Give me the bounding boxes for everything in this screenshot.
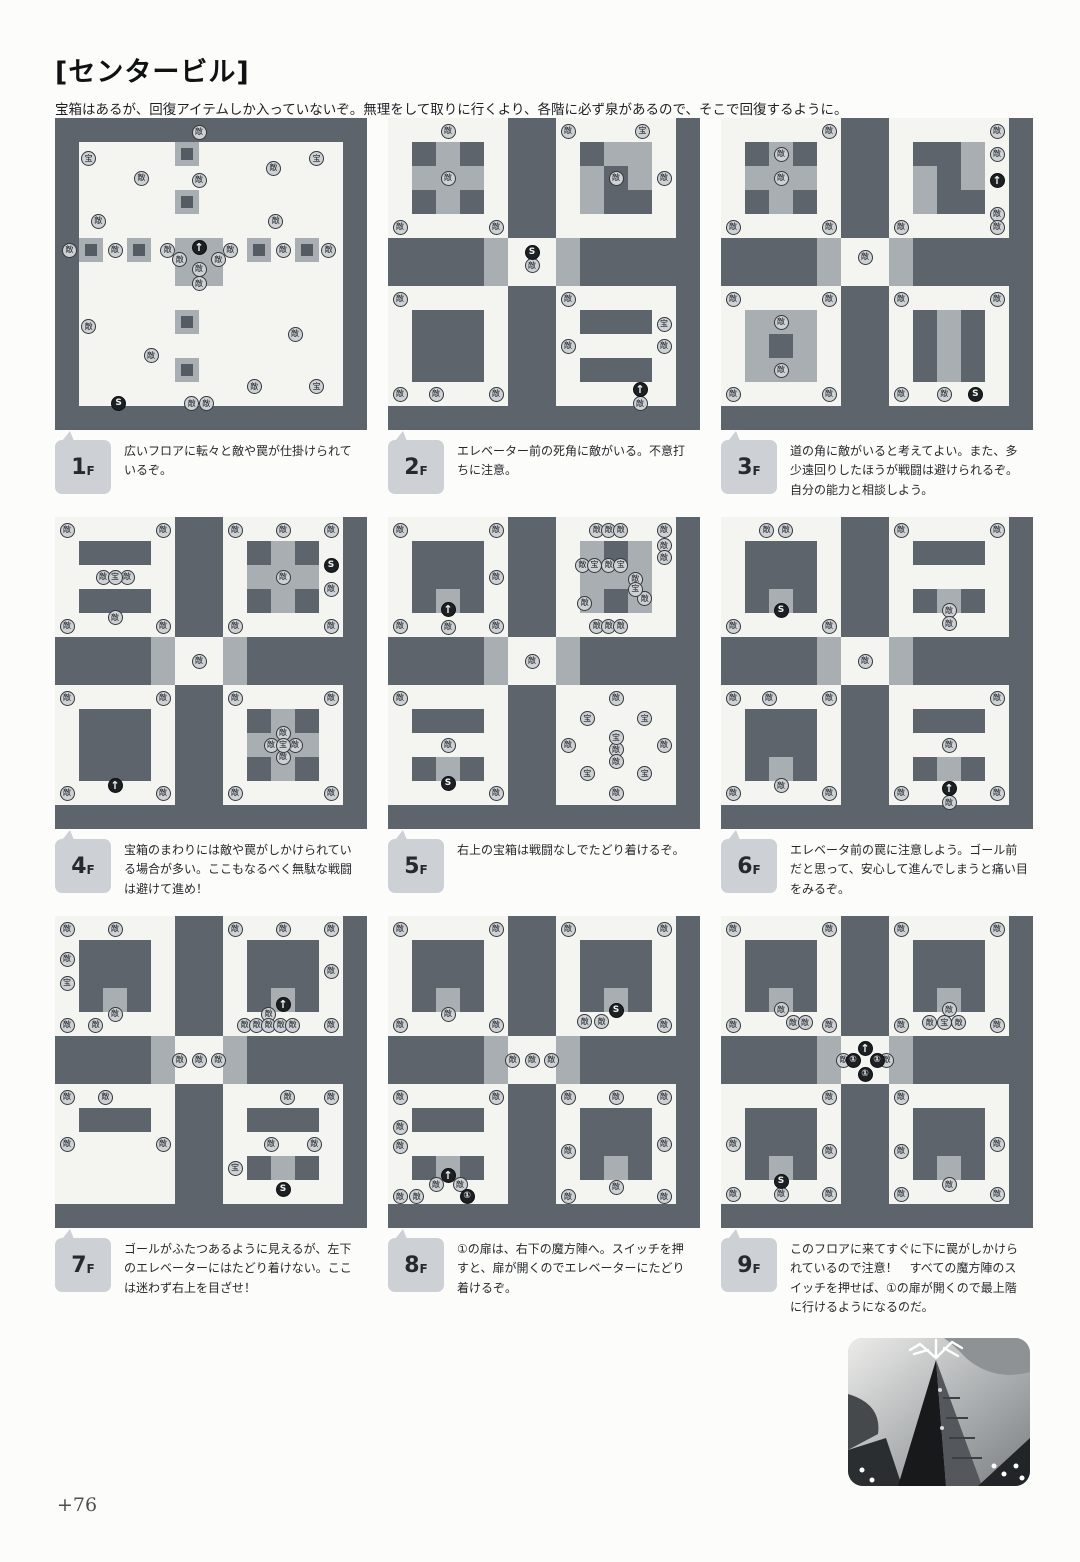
enemy-marker: 敵 [276,570,291,585]
floor-map-2f: 敵敵敵敵敵敵敵敵敵敵敵敵敵敵敵敵宝宝S↑ [388,118,700,430]
floor-suffix: F [420,1262,428,1276]
floor-caption-row: 5F右上の宝箱は戦闘なしでたどり着けるぞ。 [388,839,700,893]
enemy-marker: 敵 [192,1053,207,1068]
enemy-marker: 敵 [489,1090,504,1105]
enemy-marker: 敵 [942,738,957,753]
floor-maps-grid: 宝宝宝敵敵敵敵敵敵敵敵敵敵敵敵敵敵敵敵敵敵敵敵敵敵S↑1F広いフロアに転々と敵や… [55,118,1033,1315]
floor-number: 7 [71,1253,86,1278]
floor-caption-text: 広いフロアに転々と敵や罠が仕掛けられているぞ。 [124,442,362,494]
elevator-up-marker: ↑ [192,240,207,255]
enemy-marker: 敵 [91,214,106,229]
floor-panel-6f: 敵敵敵敵敵敵敵敵敵敵敵敵敵敵敵敵敵敵敵敵S↑6Fエレベータ前の罠に注意しよう。ゴ… [721,517,1033,916]
enemy-marker: 敵 [192,654,207,669]
enemy-marker: 敵 [822,691,837,706]
enemy-marker: 敵 [393,220,408,235]
enemy-marker: 敵 [489,619,504,634]
enemy-marker: 敵 [822,1187,837,1202]
enemy-marker: 敵 [321,243,336,258]
enemy-marker: 敵 [774,1002,789,1017]
enemy-marker: 敵 [228,922,243,937]
enemy-marker: 敵 [726,1137,741,1152]
enemy-marker: 敵 [858,654,873,669]
enemy-marker: 敵 [990,147,1005,162]
enemy-marker: 敵 [211,1053,226,1068]
enemy-marker: 敵 [942,616,957,631]
enemy-marker: 敵 [990,124,1005,139]
floor-number: 1 [71,455,86,480]
enemy-marker: 敵 [429,387,444,402]
enemy-marker: 敵 [774,778,789,793]
floor-panel-5f: 敵敵敵敵敵敵敵敵敵敵敵敵敵敵敵敵敵敵敵敵敵敵敵敵敵敵敵敵敵敵宝宝宝宝宝宝宝宝S↑… [388,517,700,916]
floor-panel-1f: 宝宝宝敵敵敵敵敵敵敵敵敵敵敵敵敵敵敵敵敵敵敵敵敵敵S↑1F広いフロアに転々と敵や… [55,118,367,517]
enemy-marker: 敵 [192,262,207,277]
enemy-marker: 敵 [280,1090,295,1105]
enemy-marker: 敵 [726,786,741,801]
elevator-up-marker: ↑ [858,1041,873,1056]
floor-badge-2f: 2F [388,440,444,494]
enemy-marker: 敵 [324,786,339,801]
enemy-marker: 敵 [393,1090,408,1105]
enemy-marker: 敵 [211,252,226,267]
enemy-marker: 敵 [657,1090,672,1105]
enemy-marker: 敵 [759,523,774,538]
start-marker: S [525,245,540,260]
enemy-marker: 敵 [894,220,909,235]
enemy-marker: 敵 [609,691,624,706]
floor-badge-6f: 6F [721,839,777,893]
enemy-marker: 敵 [156,523,171,538]
enemy-marker: 敵 [393,1120,408,1135]
floor-caption-row: 2Fエレベーター前の死角に敵がいる。不意打ちに注意。 [388,440,700,494]
enemy-marker: 敵 [60,1090,75,1105]
floor-caption-row: 7Fゴールがふたつあるように見えるが、左下のエレベーターにはたどり着けない。ここ… [55,1238,367,1298]
enemy-marker: 敵 [228,691,243,706]
enemy-marker: 敵 [822,387,837,402]
enemy-marker: 敵 [60,922,75,937]
enemy-marker: 敵 [894,1018,909,1033]
treasure-marker: 宝 [937,1015,952,1030]
floor-panel-9f: 敵敵敵敵敵敵敵敵敵敵敵敵敵敵敵敵敵敵敵敵敵敵敵敵敵敵敵敵宝S↑①①①9Fこのフロ… [721,916,1033,1315]
enemy-marker: 敵 [60,1018,75,1033]
enemy-marker: 敵 [441,620,456,635]
elevator-up-marker: ↑ [441,1168,456,1183]
enemy-marker: 敵 [990,220,1005,235]
enemy-marker: 敵 [324,523,339,538]
elevator-up-marker: ↑ [942,781,957,796]
enemy-marker: 敵 [894,523,909,538]
enemy-marker: 敵 [822,220,837,235]
enemy-marker: 敵 [393,292,408,307]
floor-badge-4f: 4F [55,839,111,893]
enemy-marker: 敵 [192,125,207,140]
enemy-marker: 敵 [134,171,149,186]
enemy-marker: 敵 [60,523,75,538]
floor-map-4f: 敵敵敵敵敵敵敵敵敵敵敵敵敵敵敵敵敵敵敵敵敵敵敵敵敵敵敵宝宝S↑ [55,517,367,829]
enemy-marker: 敵 [525,1053,540,1068]
treasure-marker: 宝 [228,1161,243,1176]
enemy-marker: 敵 [108,1007,123,1022]
enemy-marker: 敵 [441,1007,456,1022]
floor-badge-8f: 8F [388,1238,444,1292]
floor-caption-row: 1F広いフロアに転々と敵や罠が仕掛けられているぞ。 [55,440,367,494]
floor-caption-text: このフロアに来てすぐに下に罠がしかけられているので注意！ すべての魔方陣のスイッ… [790,1240,1028,1318]
numbered-door-marker: ① [870,1053,885,1068]
enemy-marker: 敵 [774,171,789,186]
floor-panel-2f: 敵敵敵敵敵敵敵敵敵敵敵敵敵敵敵敵宝宝S↑2Fエレベーター前の死角に敵がいる。不意… [388,118,700,517]
page-number: +76 [57,1494,97,1516]
treasure-marker: 宝 [635,124,650,139]
floor-badge-3f: 3F [721,440,777,494]
floor-panel-4f: 敵敵敵敵敵敵敵敵敵敵敵敵敵敵敵敵敵敵敵敵敵敵敵敵敵敵敵宝宝S↑4F宝箱のまわりに… [55,517,367,916]
enemy-marker: 敵 [199,396,214,411]
start-marker: S [774,1174,789,1189]
floor-caption-row: 9Fこのフロアに来てすぐに下に罠がしかけられているので注意！ すべての魔方陣のス… [721,1238,1033,1318]
enemy-marker: 敵 [268,214,283,229]
enemy-marker: 敵 [726,691,741,706]
enemy-marker: 敵 [285,1018,300,1033]
enemy-marker: 敵 [726,619,741,634]
enemy-marker: 敵 [894,922,909,937]
enemy-marker: 敵 [990,1137,1005,1152]
floor-number: 3 [737,455,752,480]
floor-badge-1f: 1F [55,440,111,494]
enemy-marker: 敵 [858,250,873,265]
enemy-marker: 敵 [561,339,576,354]
enemy-marker: 敵 [822,1018,837,1033]
enemy-marker: 敵 [108,922,123,937]
enemy-marker: 敵 [990,786,1005,801]
enemy-marker: 敵 [228,523,243,538]
floor-number: 4 [71,854,86,879]
enemy-marker: 敵 [726,292,741,307]
enemy-marker: 敵 [108,243,123,258]
enemy-marker: 敵 [393,619,408,634]
enemy-marker: 敵 [798,1015,813,1030]
enemy-marker: 敵 [441,738,456,753]
enemy-marker: 敵 [324,1090,339,1105]
elevator-up-marker: ↑ [990,173,1005,188]
enemy-marker: 敵 [489,570,504,585]
enemy-marker: 敵 [990,523,1005,538]
enemy-marker: 敵 [822,619,837,634]
enemy-marker: 敵 [393,691,408,706]
enemy-marker: 敵 [276,243,291,258]
floor-caption-row: 6Fエレベータ前の罠に注意しよう。ゴール前だと思って、安心して進んでしまうと痛い… [721,839,1033,899]
floor-map-8f: 敵敵敵敵敵敵敵敵敵敵敵敵敵敵敵敵敵敵敵敵敵敵敵敵敵敵敵敵敵S↑① [388,916,700,1228]
enemy-marker: 敵 [88,1018,103,1033]
start-marker: S [276,1182,291,1197]
treasure-marker: 宝 [276,738,291,753]
enemy-marker: 敵 [990,922,1005,937]
enemy-marker: 敵 [726,1018,741,1033]
enemy-marker: 敵 [613,619,628,634]
enemy-marker: 敵 [657,1018,672,1033]
enemy-marker: 敵 [60,619,75,634]
floor-number: 9 [737,1253,752,1278]
treasure-marker: 宝 [580,711,595,726]
enemy-marker: 敵 [774,315,789,330]
enemy-marker: 敵 [156,691,171,706]
floor-suffix: F [87,863,95,877]
floor-caption-text: 右上の宝箱は戦闘なしでたどり着けるぞ。 [457,841,695,893]
enemy-marker: 敵 [393,1139,408,1154]
enemy-marker: 敵 [393,1189,408,1204]
enemy-marker: 敵 [324,922,339,937]
enemy-marker: 敵 [990,1187,1005,1202]
enemy-marker: 敵 [276,922,291,937]
guidebook-page: [センタービル] 宝箱はあるが、回復アイテムしか入っていないぞ。無理をして取りに… [0,0,1080,1562]
enemy-marker: 敵 [324,619,339,634]
elevator-up-marker: ↑ [441,602,456,617]
floor-suffix: F [87,1262,95,1276]
enemy-marker: 敵 [276,523,291,538]
enemy-marker: 敵 [441,171,456,186]
enemy-marker: 敵 [613,523,628,538]
enemy-marker: 敵 [393,922,408,937]
elevator-up-marker: ↑ [633,382,648,397]
enemy-marker: 敵 [894,1144,909,1159]
enemy-marker: 敵 [489,523,504,538]
enemy-marker: 敵 [393,1018,408,1033]
enemy-marker: 敵 [990,1018,1005,1033]
enemy-marker: 敵 [98,1090,113,1105]
treasure-marker: 宝 [609,730,624,745]
enemy-marker: 敵 [726,922,741,937]
enemy-marker: 敵 [657,738,672,753]
enemy-marker: 敵 [657,550,672,565]
floor-map-9f: 敵敵敵敵敵敵敵敵敵敵敵敵敵敵敵敵敵敵敵敵敵敵敵敵敵敵敵敵宝S↑①①① [721,916,1033,1228]
page-header: [センタービル] 宝箱はあるが、回復アイテムしか入っていないぞ。無理をして取りに… [55,50,1035,118]
start-marker: S [609,1003,624,1018]
floor-number: 2 [404,455,419,480]
floor-caption-row: 3F道の角に敵がいると考えてよい。また、多少遠回りしたほうが戦闘は避けられるぞ。… [721,440,1033,500]
enemy-marker: 敵 [561,1090,576,1105]
enemy-marker: 敵 [762,691,777,706]
enemy-marker: 敵 [657,1189,672,1204]
enemy-marker: 敵 [489,786,504,801]
enemy-marker: 敵 [561,1144,576,1159]
enemy-marker: 敵 [778,523,793,538]
floor-badge-7f: 7F [55,1238,111,1292]
enemy-marker: 敵 [60,1137,75,1152]
enemy-marker: 敵 [324,582,339,597]
treasure-marker: 宝 [587,558,602,573]
floor-caption-row: 8F①の扉は、右下の魔方陣へ。スイッチを押すと、扉が開くのでエレベーターにたどり… [388,1238,700,1298]
elevator-up-marker: ↑ [108,778,123,793]
enemy-marker: 敵 [894,1187,909,1202]
floor-number: 8 [404,1253,419,1278]
enemy-marker: 敵 [156,786,171,801]
enemy-marker: 敵 [288,327,303,342]
treasure-marker: 宝 [657,317,672,332]
enemy-marker: 敵 [62,243,77,258]
enemy-marker: 敵 [324,691,339,706]
enemy-marker: 敵 [822,1144,837,1159]
floor-badge-5f: 5F [388,839,444,893]
floor-map-6f: 敵敵敵敵敵敵敵敵敵敵敵敵敵敵敵敵敵敵敵敵S↑ [721,517,1033,829]
treasure-marker: 宝 [613,558,628,573]
floor-suffix: F [753,1262,761,1276]
floor-suffix: F [87,464,95,478]
numbered-door-marker: ① [846,1053,861,1068]
enemy-marker: 敵 [525,258,540,273]
page-title: [センタービル] [55,50,1035,89]
floor-suffix: F [753,464,761,478]
enemy-marker: 敵 [942,1177,957,1192]
floor-map-1f: 宝宝宝敵敵敵敵敵敵敵敵敵敵敵敵敵敵敵敵敵敵敵敵敵敵S↑ [55,118,367,430]
floor-caption-text: 宝箱のまわりには敵や罠がしかけられている場合が多い。ここもなるべく無駄な戦闘は避… [124,841,362,899]
enemy-marker: 敵 [324,964,339,979]
enemy-marker: 敵 [247,379,262,394]
floor-number: 5 [404,854,419,879]
enemy-marker: 敵 [726,387,741,402]
enemy-marker: 敵 [561,1189,576,1204]
enemy-marker: 敵 [774,363,789,378]
floor-panel-7f: 敵敵敵敵敵敵敵敵敵敵敵敵敵敵敵敵敵敵敵敵敵敵敵敵敵敵敵敵宝宝S↑7Fゴールがふた… [55,916,367,1315]
enemy-marker: 敵 [561,124,576,139]
treasure-marker: 宝 [628,582,643,597]
tower-screenshot-photo [848,1338,1030,1486]
floor-map-3f: 敵敵敵敵敵敵敵敵敵敵敵敵敵敵敵敵敵敵敵敵敵S↑ [721,118,1033,430]
start-marker: S [324,558,339,573]
enemy-marker: 敵 [609,754,624,769]
enemy-marker: 敵 [144,348,159,363]
floor-suffix: F [753,863,761,877]
floor-suffix: F [420,464,428,478]
enemy-marker: 敵 [657,171,672,186]
enemy-marker: 敵 [266,161,281,176]
enemy-marker: 敵 [324,1018,339,1033]
enemy-marker: 敵 [657,523,672,538]
treasure-marker: 宝 [580,766,595,781]
enemy-marker: 敵 [822,1090,837,1105]
enemy-marker: 敵 [609,1180,624,1195]
enemy-marker: 敵 [192,276,207,291]
enemy-marker: 敵 [822,786,837,801]
enemy-marker: 敵 [894,786,909,801]
enemy-marker: 敵 [990,691,1005,706]
floor-caption-text: 道の角に敵がいると考えてよい。また、多少遠回りしたほうが戦闘は避けられるぞ。自分… [790,442,1028,500]
enemy-marker: 敵 [544,1053,559,1068]
enemy-marker: 敵 [657,339,672,354]
enemy-marker: 敵 [822,292,837,307]
enemy-marker: 敵 [633,396,648,411]
enemy-marker: 敵 [489,220,504,235]
enemy-marker: 敵 [726,1187,741,1202]
enemy-marker: 敵 [822,124,837,139]
enemy-marker: 敵 [393,387,408,402]
enemy-marker: 敵 [228,619,243,634]
enemy-marker: 敵 [894,1090,909,1105]
enemy-marker: 敵 [990,292,1005,307]
enemy-marker: 敵 [561,922,576,937]
enemy-marker: 敵 [489,1018,504,1033]
enemy-marker: 敵 [192,173,207,188]
floor-map-5f: 敵敵敵敵敵敵敵敵敵敵敵敵敵敵敵敵敵敵敵敵敵敵敵敵敵敵敵敵敵敵宝宝宝宝宝宝宝宝S↑ [388,517,700,829]
enemy-marker: 敵 [894,292,909,307]
enemy-marker: 敵 [774,1187,789,1202]
enemy-marker: 敵 [156,619,171,634]
floor-caption-text: エレベーター前の死角に敵がいる。不意打ちに注意。 [457,442,695,494]
floor-caption-text: エレベータ前の罠に注意しよう。ゴール前だと思って、安心して進んでしまうと痛い目を… [790,841,1028,899]
enemy-marker: 敵 [774,147,789,162]
enemy-marker: 敵 [264,1137,279,1152]
enemy-marker: 敵 [726,220,741,235]
floor-caption-row: 4F宝箱のまわりには敵や罠がしかけられている場合が多い。ここもなるべく無駄な戦闘… [55,839,367,899]
enemy-marker: 敵 [489,387,504,402]
start-marker: S [441,776,456,791]
enemy-marker: 敵 [60,952,75,967]
enemy-marker: 敵 [307,1137,322,1152]
enemy-marker: 敵 [393,523,408,538]
enemy-marker: 敵 [525,654,540,669]
enemy-marker: 敵 [822,922,837,937]
floor-caption-text: ゴールがふたつあるように見えるが、左下のエレベーターにはたどり着けない。ここは迷… [124,1240,362,1298]
page-subtitle: 宝箱はあるが、回復アイテムしか入っていないぞ。無理をして取りに行くより、各階に必… [55,98,1035,118]
start-marker: S [968,387,983,402]
start-marker: S [774,603,789,618]
floor-panel-3f: 敵敵敵敵敵敵敵敵敵敵敵敵敵敵敵敵敵敵敵敵敵S↑3F道の角に敵がいると考えてよい。… [721,118,1033,517]
enemy-marker: 敵 [489,922,504,937]
floor-badge-9f: 9F [721,1238,777,1292]
treasure-marker: 宝 [108,570,123,585]
enemy-marker: 敵 [657,1137,672,1152]
enemy-marker: 敵 [156,1137,171,1152]
enemy-marker: 敵 [609,171,624,186]
enemy-marker: 敵 [228,786,243,801]
floor-caption-text: ①の扉は、右下の魔方陣へ。スイッチを押すと、扉が開くのでエレベーターにたどり着け… [457,1240,695,1298]
enemy-marker: 敵 [942,795,957,810]
elevator-up-marker: ↑ [276,997,291,1012]
floor-panel-8f: 敵敵敵敵敵敵敵敵敵敵敵敵敵敵敵敵敵敵敵敵敵敵敵敵敵敵敵敵敵S↑①8F①の扉は、右… [388,916,700,1315]
enemy-marker: 敵 [60,691,75,706]
floor-number: 6 [737,854,752,879]
treasure-marker: 宝 [60,976,75,991]
floor-suffix: F [420,863,428,877]
enemy-marker: 敵 [657,922,672,937]
numbered-door-marker: ① [858,1067,873,1082]
enemy-marker: 敵 [609,786,624,801]
enemy-marker: 敵 [108,610,123,625]
enemy-marker: 敵 [894,387,909,402]
floor-map-7f: 敵敵敵敵敵敵敵敵敵敵敵敵敵敵敵敵敵敵敵敵敵敵敵敵敵敵敵敵宝宝S↑ [55,916,367,1228]
enemy-marker: 敵 [172,1053,187,1068]
enemy-marker: 敵 [937,387,952,402]
enemy-marker: 敵 [609,1090,624,1105]
enemy-marker: 敵 [441,124,456,139]
enemy-marker: 敵 [505,1053,520,1068]
enemy-marker: 敵 [561,292,576,307]
enemy-marker: 敵 [60,786,75,801]
numbered-door-marker: ① [460,1189,475,1204]
tower-lightning-illustration [848,1338,1030,1486]
enemy-marker: 敵 [561,738,576,753]
